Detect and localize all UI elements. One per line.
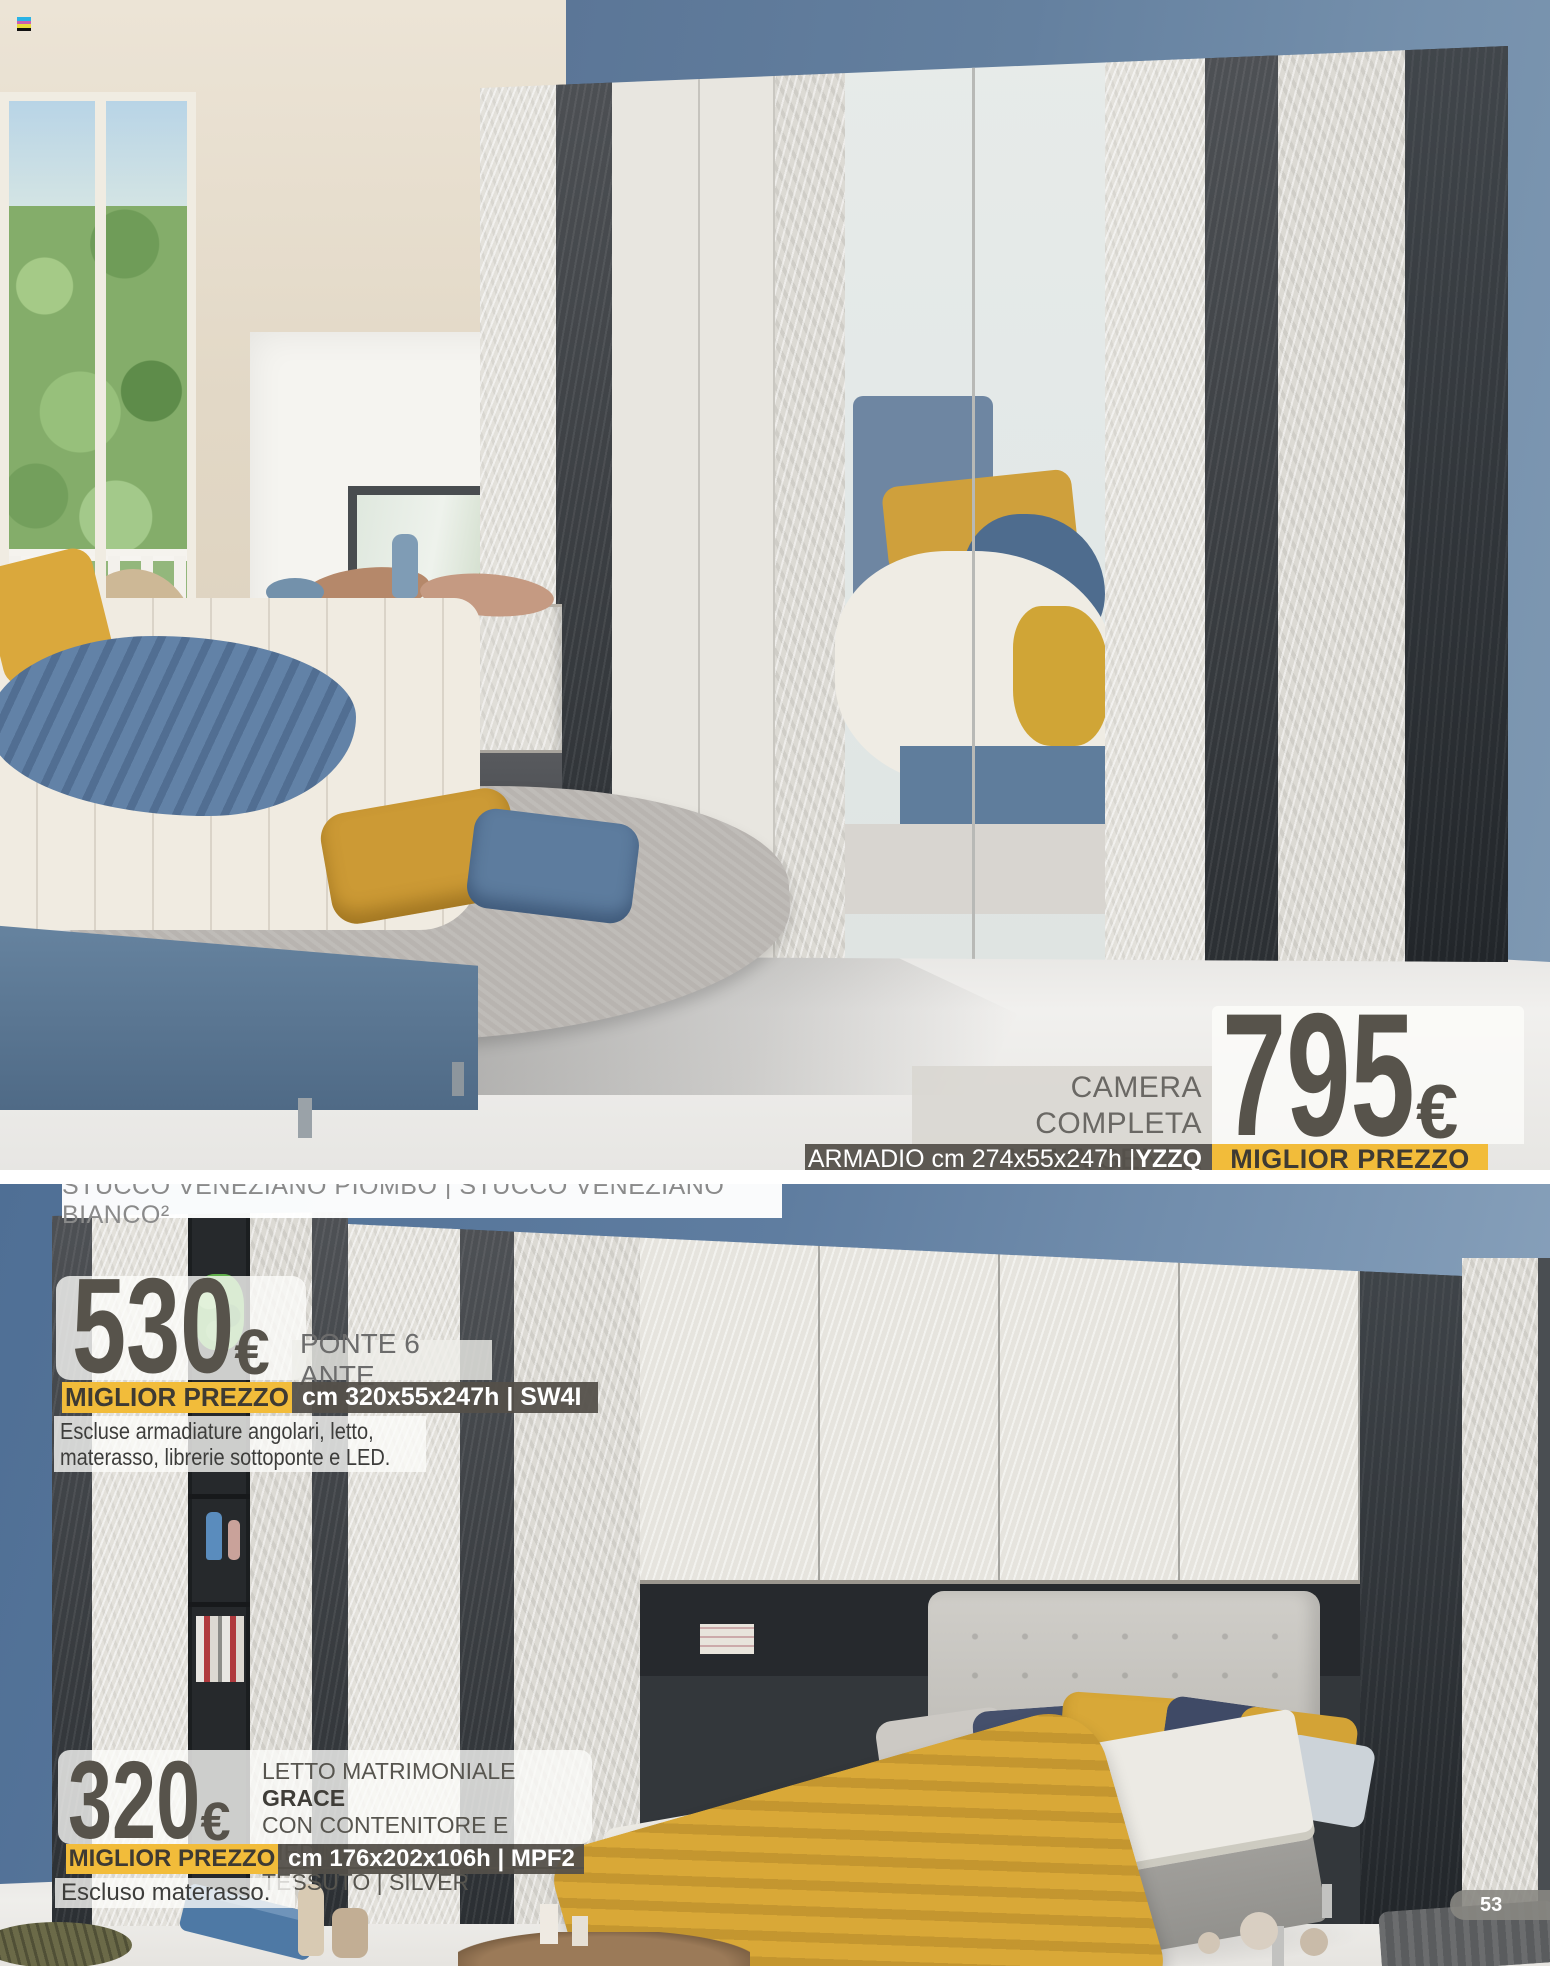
spec-code: MPF2 bbox=[511, 1845, 575, 1872]
finish-label: STUCCO VENEZIANO PIOMBO | STUCCO VENEZIA… bbox=[62, 1184, 782, 1218]
wardrobe-panel-white bbox=[775, 46, 845, 962]
page-number: 53 bbox=[1480, 1894, 1502, 1917]
bed-foot bbox=[1322, 1884, 1332, 1918]
photo-bedroom-vela: CAMERA COMPLETA VELA SENZA LETTO ARMADIO… bbox=[0, 0, 1550, 1170]
spec-code: SW4I bbox=[520, 1383, 581, 1411]
page-number-badge: 53 bbox=[1450, 1890, 1550, 1920]
spec-bar-vela: ARMADIO cm 274x55x247h | YZZQ bbox=[805, 1144, 1212, 1170]
bed-leg bbox=[452, 1062, 464, 1096]
product-name-ponte: PONTE 6 ANTE bbox=[292, 1340, 492, 1380]
beige-vase bbox=[332, 1908, 368, 1958]
exclusion-note-ponte: Escluse armadiature angolari, letto, mat… bbox=[54, 1416, 426, 1472]
mirror-door-divider bbox=[972, 46, 975, 962]
rose-bottle bbox=[228, 1520, 240, 1560]
best-price-badge-ponte: MIGLIOR PREZZO bbox=[62, 1382, 292, 1413]
dark-column bbox=[1360, 1224, 1462, 1924]
reflected-floor bbox=[845, 824, 1105, 914]
candle bbox=[572, 1916, 588, 1946]
right-edge-shadow bbox=[1538, 1258, 1550, 1910]
price-grace: 320 € bbox=[68, 1756, 231, 1844]
photo-bedroom-ponte: STUCCO VENEZIANO PIOMBO | STUCCO VENEZIA… bbox=[0, 1184, 1550, 1966]
blue-bottle bbox=[206, 1512, 222, 1560]
best-price-badge-vela: MIGLIOR PREZZO bbox=[1212, 1144, 1488, 1170]
euro-sign: € bbox=[234, 1326, 270, 1378]
wardrobe-end-column bbox=[1405, 46, 1508, 962]
floor-pillow-blue bbox=[465, 806, 642, 925]
spec-text: cm 320x55x247h | bbox=[302, 1383, 520, 1411]
spec-bar-ponte: cm 320x55x247h | SW4I bbox=[292, 1382, 598, 1413]
candle bbox=[540, 1904, 558, 1944]
reflected-yellow-blanket bbox=[1013, 606, 1108, 746]
reg-black-stripe bbox=[17, 28, 31, 32]
bridge-cabinet-doors bbox=[640, 1232, 1360, 1584]
wooden-tray bbox=[458, 1932, 750, 1966]
price-digits: 320 bbox=[68, 1758, 200, 1844]
catalog-page: CAMERA COMPLETA VELA SENZA LETTO ARMADIO… bbox=[0, 0, 1550, 1966]
product-name-grace: LETTO MATRIMONIALE GRACE CON CONTENITORE… bbox=[262, 1758, 584, 1896]
bed-leg bbox=[298, 1098, 312, 1138]
wardrobe-panel-dark bbox=[1205, 46, 1278, 962]
decor-shell bbox=[1240, 1912, 1278, 1950]
right-panel bbox=[1462, 1258, 1550, 1910]
product-title-vela: CAMERA COMPLETA VELA SENZA LETTO bbox=[912, 1066, 1212, 1144]
spec-text: cm 176x202x106h | bbox=[288, 1845, 511, 1872]
wardrobe-mirror-doors bbox=[845, 46, 1105, 962]
spec-bar-grace: cm 176x202x106h | MPF2 bbox=[278, 1844, 584, 1874]
name-regular: LETTO MATRIMONIALE bbox=[262, 1758, 515, 1784]
best-price-badge-grace: MIGLIOR PREZZO bbox=[66, 1844, 278, 1874]
decor-vase bbox=[392, 534, 418, 598]
decor-shell bbox=[1198, 1932, 1220, 1954]
books bbox=[196, 1616, 244, 1682]
euro-sign: € bbox=[1416, 1082, 1458, 1144]
spec-code: YZZQ bbox=[1135, 1145, 1202, 1171]
wardrobe-panel-white bbox=[1278, 46, 1405, 962]
exclusion-note-grace: Escluso materasso. bbox=[55, 1878, 295, 1908]
niche-books bbox=[700, 1624, 754, 1654]
price-ponte: 530 € bbox=[72, 1282, 270, 1378]
note-line2: materasso, librerie sottoponte e LED. bbox=[60, 1444, 390, 1470]
spec-text: ARMADIO cm 274x55x247h | bbox=[808, 1145, 1135, 1171]
print-registration-mark-icon bbox=[17, 17, 31, 31]
price-digits: 795 bbox=[1222, 1008, 1415, 1145]
shelf bbox=[188, 1494, 250, 1499]
price-digits: 530 bbox=[72, 1273, 234, 1378]
price-vela: 795 € bbox=[1222, 1012, 1458, 1144]
bed-blue-throw bbox=[0, 636, 356, 816]
floor-plant-decor bbox=[0, 1922, 132, 1966]
title-line1: CAMERA COMPLETA bbox=[1035, 1071, 1202, 1140]
shelf bbox=[188, 1602, 250, 1607]
reflected-bed-base bbox=[900, 746, 1105, 828]
decor-shell bbox=[1300, 1928, 1328, 1956]
note-line1: Escluse armadiature angolari, letto, bbox=[60, 1418, 374, 1444]
name-bold: GRACE bbox=[262, 1785, 345, 1811]
wardrobe-panel-white bbox=[1105, 46, 1205, 962]
euro-sign: € bbox=[201, 1800, 231, 1844]
